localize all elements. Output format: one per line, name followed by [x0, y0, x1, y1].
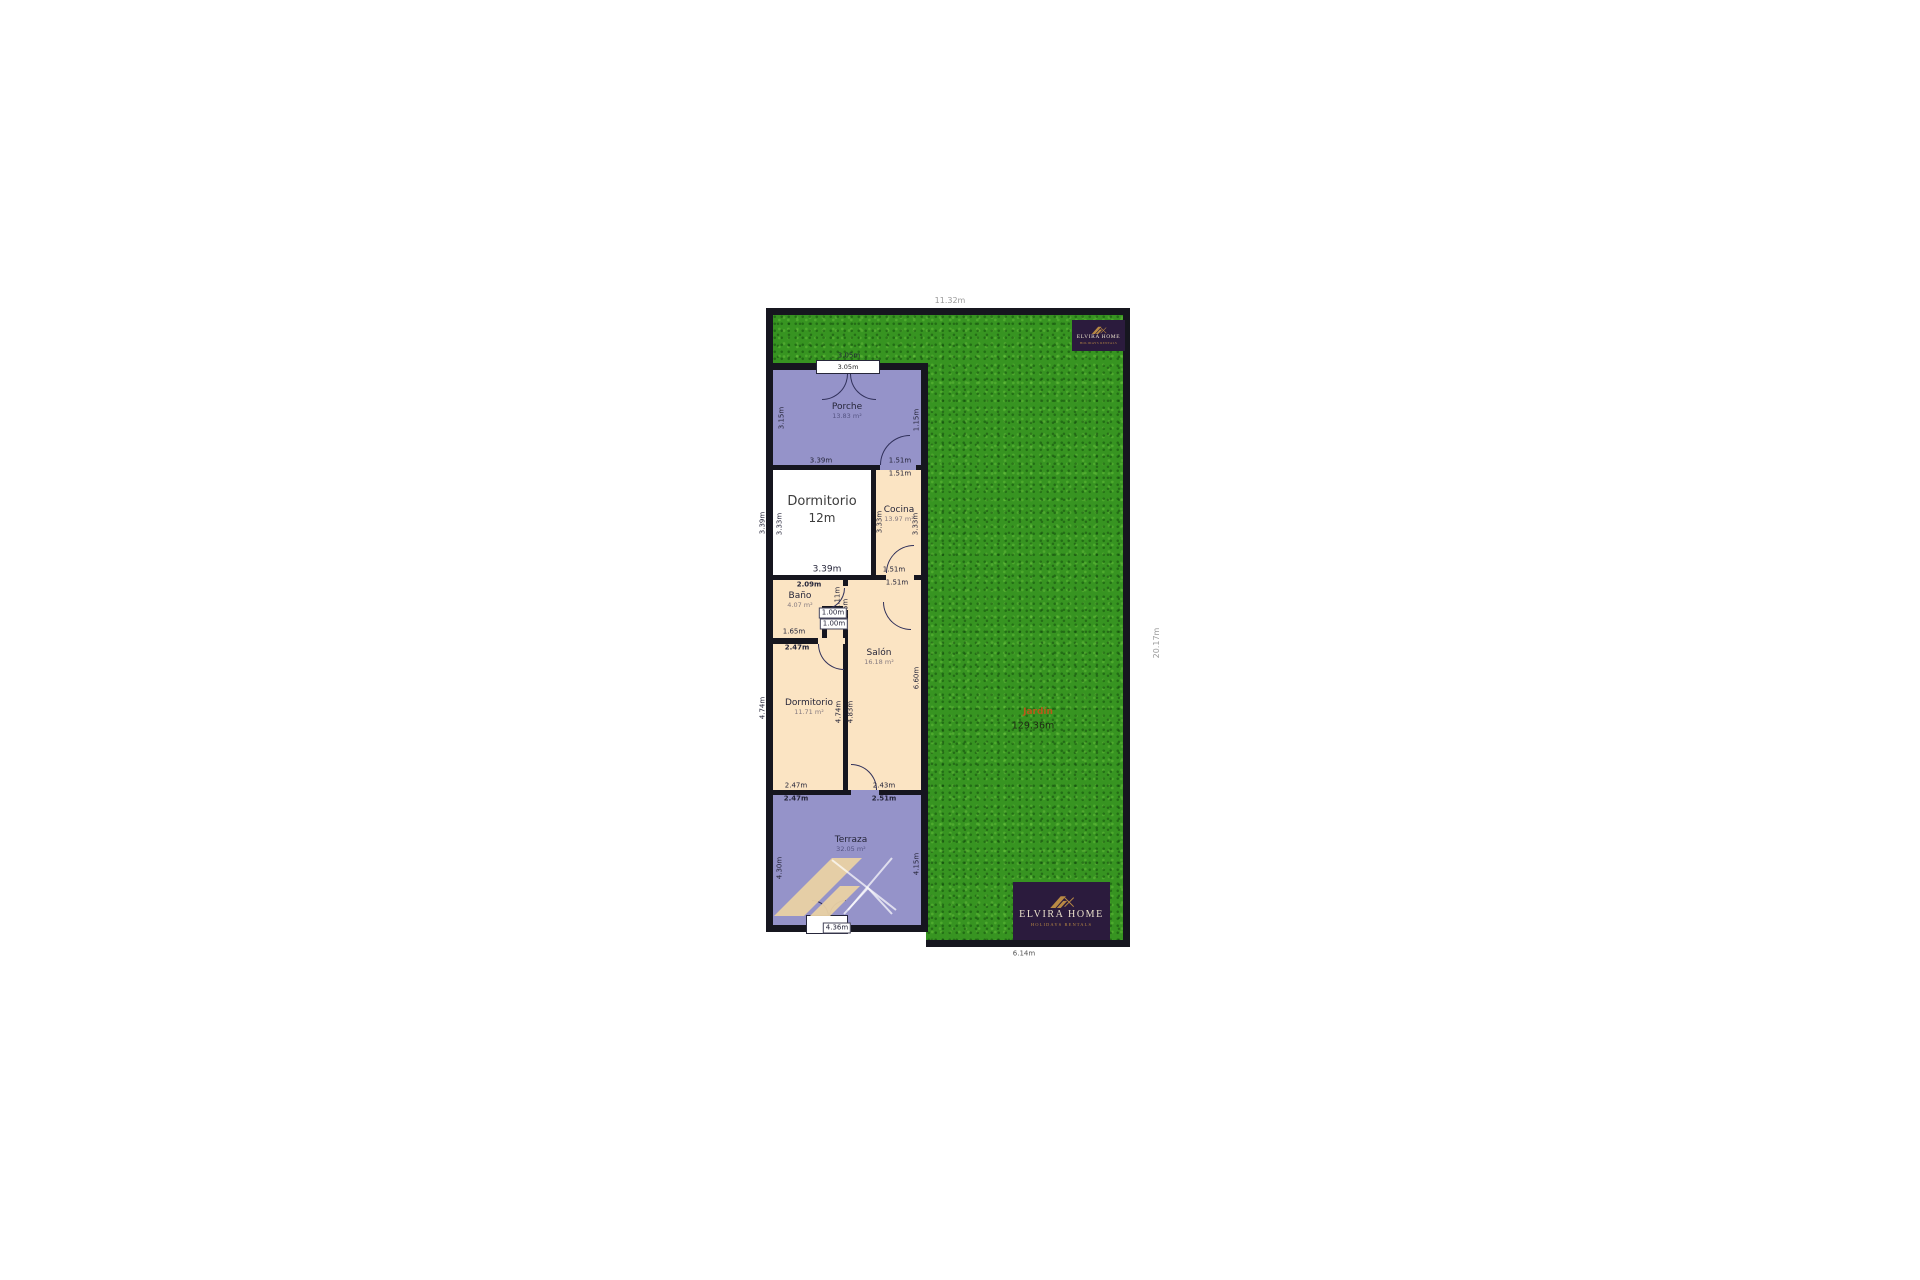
dormitorio1-bottom-dim: 3.39m — [813, 566, 842, 575]
wall-building-right — [921, 363, 928, 932]
bano-notch-width-dim: 1.00m — [819, 608, 847, 619]
overall-top-width-dim: 11.32m — [935, 297, 966, 305]
bano-label: Baño 4.07 m² — [787, 592, 812, 610]
porche-door-width-label: 3.05m — [838, 363, 859, 371]
porche-door-outer-dim: 3.05m — [838, 353, 860, 360]
garden-area-label: 129.36m — [1012, 721, 1055, 732]
brand-name-large: ELVIRA HOME — [1019, 910, 1104, 920]
bano-notch-height-dim: 1.00m — [820, 619, 848, 630]
porche-doorframe: 3.05m — [816, 360, 880, 374]
dormitorio2-area: 11.71 m² — [785, 709, 833, 717]
brand-tagline-large: HOLIDAYS RENTALS — [1031, 923, 1092, 928]
floorplan: 3.05m 4.36m Porche 13.83 m² Dormitorio 1… — [766, 308, 1130, 956]
cocina-left-dim: 3.33m — [877, 511, 884, 533]
brand-tagline-small: HOLIDAYS RENTALS — [1080, 342, 1117, 345]
salon-top-dim: 1.51m — [886, 580, 908, 587]
brand-logo-small: ELVIRA HOME HOLIDAYS RENTALS — [1072, 320, 1125, 351]
garden-name: Jardín — [1023, 707, 1053, 717]
porche-right-dim: 1.15m — [914, 409, 921, 431]
salon-right-dim: 6.60m — [914, 667, 921, 689]
wall-left — [766, 308, 773, 932]
salon-bottom-dim: 2.43m — [873, 783, 895, 790]
salon-divider-left-dim: 4.74m — [836, 701, 843, 723]
dormitorio2-label: Dormitorio 11.71 m² — [785, 699, 833, 717]
cocina-area: 13.97 m² — [884, 516, 914, 524]
porche-label: Porche 13.83 m² — [832, 403, 862, 421]
dormitorio1-size: 12m — [787, 511, 856, 525]
dormitorio2-left-dim: 4.74m — [760, 697, 767, 719]
bano-bottom-dim: 1.65m — [783, 629, 805, 636]
bano-area: 4.07 m² — [787, 602, 812, 610]
cocina-right-dim: 3.33m — [913, 513, 920, 535]
cocina-top-dim: 1.51m — [889, 471, 911, 478]
brand-roof-icon-large — [1049, 895, 1075, 908]
porche-left-dim: 3.15m — [779, 407, 786, 429]
cocina-bottom-dim: 1.51m — [883, 567, 905, 574]
bano-bottom-outer-dim: 2.47m — [785, 645, 810, 652]
dormitorio1-left-outer-dim: 3.39m — [760, 512, 767, 534]
salon-label: Salón 16.18 m² — [864, 649, 894, 667]
porche-bottom-left-dim: 3.39m — [810, 458, 832, 465]
terraza-left-dim: 4.30m — [777, 857, 784, 879]
dormitorio1-label: Dormitorio 12m — [787, 495, 856, 525]
salon-bottom-outer-dim: 2.51m — [872, 796, 897, 803]
floorplan-page: 3.05m 4.36m Porche 13.83 m² Dormitorio 1… — [0, 0, 1920, 1280]
dormitorio1-name: Dormitorio — [787, 495, 856, 509]
bano-side-upper-dim: 1.11m — [835, 587, 842, 609]
terraza-area: 32.05 m² — [835, 846, 868, 854]
porche-bottom-right-dim: 1.51m — [889, 458, 911, 465]
bano-top-dim: 2.09m — [797, 582, 822, 589]
porche-area: 13.83 m² — [832, 413, 862, 421]
dormitorio1-left-inner-dim: 3.33m — [777, 513, 784, 535]
dormitorio2-bottom-dim: 2.47m — [785, 783, 807, 790]
salon-area: 16.18 m² — [864, 659, 894, 667]
salon-divider-right-dim: 4.83m — [848, 701, 855, 723]
brand-name-small: ELVIRA HOME — [1077, 335, 1121, 341]
overall-bottom-width-dim: 6.14m — [1013, 951, 1035, 958]
brand-logo-large: ELVIRA HOME HOLIDAYS RENTALS — [1013, 882, 1110, 940]
terraza-watermark-logo — [774, 848, 912, 920]
brand-roof-icon — [1091, 326, 1107, 334]
overall-right-height-dim: 20.17m — [1153, 628, 1161, 659]
page-background-patch — [762, 932, 926, 962]
terraza-right-dim: 4.15m — [914, 853, 921, 875]
cocina-label: Cocina 13.97 m² — [884, 506, 914, 524]
terraza-label: Terraza 32.05 m² — [835, 836, 868, 854]
terraza-door-width-label: 4.36m — [823, 923, 851, 934]
dormitorio2-bottom-outer-dim: 2.47m — [784, 796, 809, 803]
